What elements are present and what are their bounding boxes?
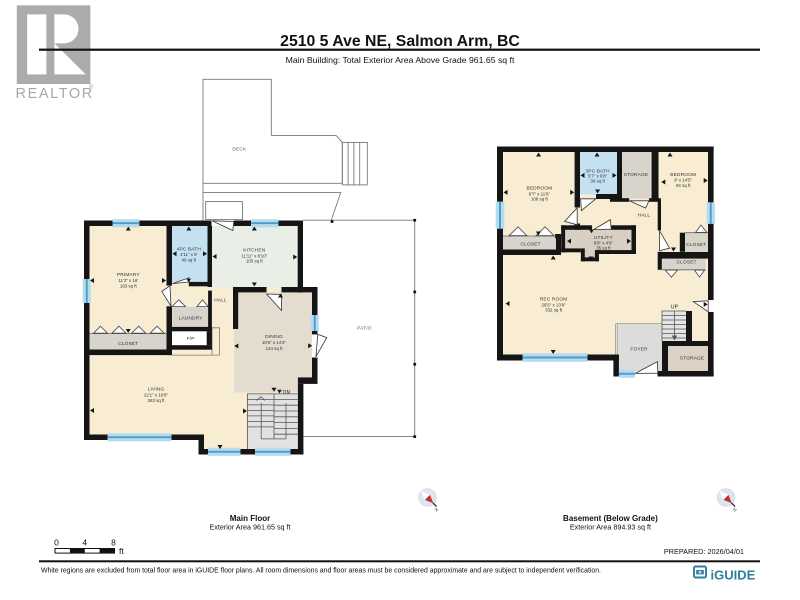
svg-text:HALL: HALL	[638, 213, 651, 219]
svg-text:HALL: HALL	[214, 298, 227, 304]
svg-text:CLOSET: CLOSET	[118, 341, 138, 347]
svg-text:CLOSET: CLOSET	[677, 260, 697, 266]
svg-text:4: 4	[82, 538, 87, 548]
svg-text:332 sq ft: 332 sq ft	[545, 308, 563, 313]
svg-text:22'1" x 16'8": 22'1" x 16'8"	[144, 392, 169, 397]
svg-text:0: 0	[54, 538, 59, 548]
svg-text:UP: UP	[671, 305, 679, 311]
svg-text:108 sq ft: 108 sq ft	[531, 197, 549, 202]
svg-text:10'6" x 14'4": 10'6" x 14'4"	[262, 340, 287, 345]
svg-text:REALTOR: REALTOR	[16, 86, 94, 102]
svg-text:163 sq ft: 163 sq ft	[120, 284, 138, 289]
svg-text:11'11" x 8'10": 11'11" x 8'10"	[241, 253, 267, 258]
svg-text:White regions are excluded fro: White regions are excluded from total fl…	[41, 568, 601, 575]
svg-text:94 sq ft: 94 sq ft	[676, 183, 691, 188]
svg-text:36 sq ft: 36 sq ft	[590, 179, 605, 184]
svg-text:Exterior Area 894.93 sq ft: Exterior Area 894.93 sq ft	[570, 523, 651, 532]
svg-text:105 sq ft: 105 sq ft	[246, 259, 264, 264]
svg-text:DN: DN	[283, 390, 291, 396]
svg-text:35 sq ft: 35 sq ft	[596, 245, 611, 250]
svg-text:®: ®	[89, 84, 94, 91]
svg-text:11'3" x 16': 11'3" x 16'	[118, 278, 138, 283]
svg-text:40 sq ft: 40 sq ft	[182, 257, 197, 262]
svg-text:263 sq ft: 263 sq ft	[148, 398, 166, 403]
svg-text:144 sq ft: 144 sq ft	[266, 346, 284, 351]
svg-text:Exterior Area 961.65 sq ft: Exterior Area 961.65 sq ft	[209, 523, 290, 532]
svg-text:2510 5 Ave NE, Salmon Arm, BC: 2510 5 Ave NE, Salmon Arm, BC	[280, 33, 520, 50]
svg-text:PATIO: PATIO	[357, 326, 372, 331]
svg-text:iGUIDE: iGUIDE	[711, 568, 756, 583]
svg-text:F/P: F/P	[187, 336, 195, 342]
svg-text:8: 8	[111, 538, 116, 548]
svg-text:STORAGE: STORAGE	[680, 356, 704, 362]
svg-text:LAUNDRY: LAUNDRY	[179, 315, 204, 321]
svg-text:Main Building: Total Exterior: Main Building: Total Exterior Area Above…	[286, 55, 515, 65]
svg-text:DECK: DECK	[232, 147, 247, 152]
svg-text:ft: ft	[119, 546, 124, 556]
svg-text:STORAGE: STORAGE	[624, 172, 648, 178]
svg-text:26'5" x 13'9": 26'5" x 13'9"	[542, 302, 567, 307]
svg-text:8' x 14'5": 8' x 14'5"	[674, 178, 692, 183]
svg-text:PREPARED: 2026/04/01: PREPARED: 2026/04/01	[664, 547, 744, 556]
svg-text:FOYER: FOYER	[630, 347, 648, 353]
svg-text:CLOSET: CLOSET	[521, 242, 541, 248]
svg-text:CLOSET: CLOSET	[686, 242, 706, 248]
